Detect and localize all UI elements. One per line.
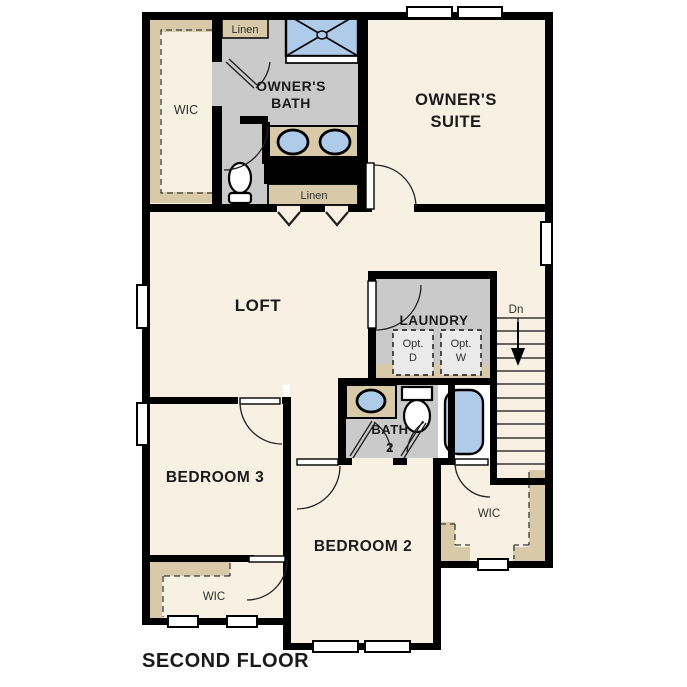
- owners-bath-label-1: OWNER'S: [256, 78, 326, 94]
- floor-plan: WIC Linen OWNER'S BATH OWNER'S SUITE Lin…: [0, 0, 687, 687]
- window-bedroom2-1: [313, 641, 358, 652]
- linen-top-label: Linen: [232, 24, 259, 36]
- wall-bedroom3-top-a: [142, 397, 238, 404]
- bedroom3-label: BEDROOM 3: [166, 469, 264, 486]
- wall-wic-bath-upper: [212, 12, 222, 62]
- wall-bedroom2-bottom: [283, 643, 440, 650]
- wall-loft-top-stub: [300, 204, 325, 212]
- owners-suite-label-2: SUITE: [430, 113, 481, 131]
- wic-b2-shelf-left-foot: [440, 547, 470, 561]
- door-jamb-wic-b3: [249, 556, 285, 562]
- stairs-dn-label: Dn: [509, 304, 524, 316]
- page-title: SECOND FLOOR: [142, 650, 309, 672]
- owners-bath-label-2: BATH: [271, 95, 311, 111]
- wall-chase: [264, 156, 358, 184]
- door-leaf-laundry: [368, 281, 376, 328]
- wic-b3-label: WIC: [203, 591, 225, 603]
- door-jamb-bedroom3: [240, 398, 280, 404]
- laundry-label: LAUNDRY: [400, 313, 469, 328]
- shower-door: [286, 56, 358, 63]
- bedroom3-floor: [149, 385, 283, 618]
- door-leaf-owners-suite: [366, 163, 374, 209]
- linen-hall-label: Linen: [301, 190, 328, 202]
- shower-drain: [317, 31, 327, 39]
- wall-bath2-left: [338, 378, 346, 465]
- opt-w-label-2: W: [456, 352, 467, 364]
- wall-tub-divider: [448, 378, 455, 465]
- window-right: [541, 222, 552, 265]
- wic-b3-shelf-top: [149, 562, 230, 576]
- wic-owner-label: WIC: [174, 103, 198, 117]
- wic-b2-shelf-right-foot: [513, 547, 546, 561]
- wall-bath2-bottom-b: [393, 458, 407, 465]
- wall-right-lower: [545, 458, 553, 568]
- opt-d-label-1: Opt.: [403, 338, 424, 350]
- window-wic-b3-2: [227, 616, 257, 627]
- opt-d-label-2: D: [409, 352, 417, 364]
- wall-wic-b3-top: [142, 555, 254, 562]
- window-suite-top-2: [458, 7, 502, 18]
- sink-right-icon: [320, 130, 350, 154]
- door-jamb-wic-b2: [455, 459, 488, 465]
- bath2-sink-icon: [357, 390, 385, 412]
- wall-suite-bottom: [414, 204, 553, 212]
- window-suite-top-1: [407, 7, 452, 18]
- wall-laundry-left-b: [368, 328, 376, 385]
- wall-loft-top-a: [142, 204, 277, 212]
- laundry-room: [376, 279, 490, 378]
- bath2-room: [346, 385, 490, 458]
- wall-bedroom3-bottom: [142, 618, 291, 625]
- toilet-owner-base: [229, 193, 251, 203]
- bath2-label-2: 2: [386, 440, 394, 455]
- wall-laundry-bottom: [338, 378, 497, 385]
- window-loft-left: [137, 285, 148, 328]
- bath2-label-1: BATH: [371, 422, 408, 437]
- wic-b2-label: WIC: [478, 508, 500, 520]
- wall-wic-b2-stub: [433, 458, 455, 465]
- wall-bedroom2-right: [433, 458, 441, 650]
- wall-bedroom3-bedroom2: [283, 397, 291, 650]
- sink-left-icon: [278, 130, 308, 154]
- wall-stairs-bottom: [490, 478, 553, 485]
- window-bedroom3-left: [137, 403, 148, 445]
- window-wic-b2: [478, 559, 508, 570]
- window-wic-b3-1: [168, 616, 198, 627]
- toilet-bath2-tank: [402, 387, 432, 400]
- opt-w-label-1: Opt.: [451, 338, 472, 350]
- wall-bath2-bottom-a: [340, 458, 352, 465]
- loft-label: LOFT: [235, 296, 281, 315]
- wall-laundry-top: [368, 271, 497, 279]
- wall-wic-bath-lower: [212, 106, 222, 212]
- window-bedroom2-2: [365, 641, 410, 652]
- bedroom2-label: BEDROOM 2: [314, 538, 412, 555]
- floor-plan-drawing: WIC Linen OWNER'S BATH OWNER'S SUITE Lin…: [0, 0, 687, 687]
- door-jamb-bedroom2: [297, 459, 338, 465]
- wall-bath-divider: [262, 122, 270, 164]
- owners-suite-label-1: OWNER'S: [415, 91, 497, 109]
